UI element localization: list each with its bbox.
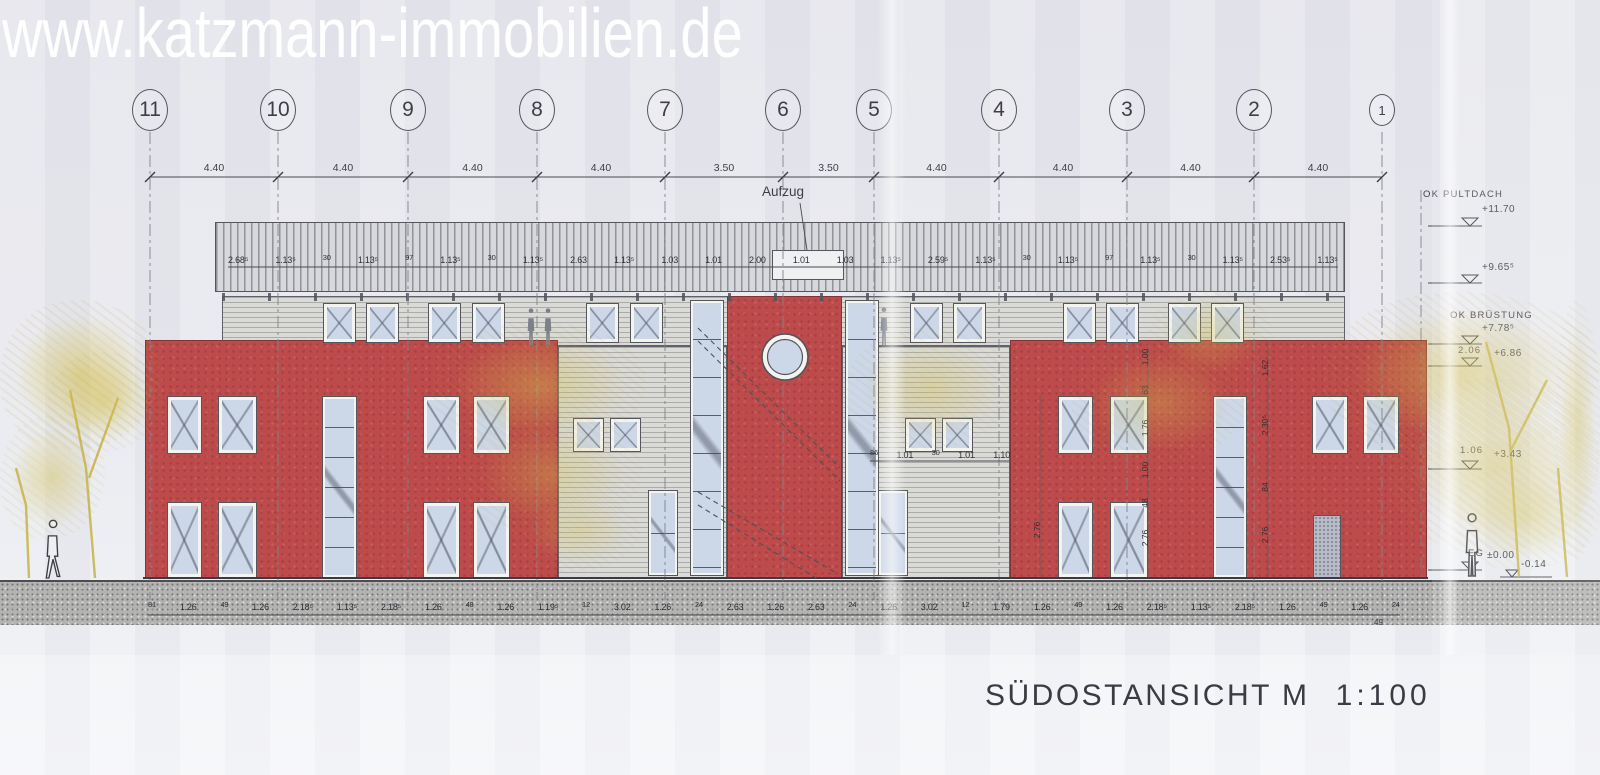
bottom-dimension-chain: 811.26491.262.18⁵1.13⁵2.18⁵1.26481.261.1… xyxy=(148,600,1400,612)
dim-label-tail: 49 xyxy=(1374,619,1383,627)
dim-label: 48 xyxy=(466,600,474,609)
top-dimension: 4.40 xyxy=(455,163,491,174)
dim-label: 1.13⁵ xyxy=(1058,255,1078,265)
vertical-dim-label: 84 xyxy=(1260,482,1270,491)
dim-label: 30 xyxy=(323,253,331,262)
dim-label: 1.13⁵ xyxy=(1191,602,1211,612)
window xyxy=(366,303,399,343)
grid-axis-2: 2 xyxy=(1236,89,1272,131)
dim-label: 1.26 xyxy=(1279,602,1296,612)
dim-label: 1.13⁵ xyxy=(440,255,460,265)
dim-label: 81 xyxy=(148,600,156,609)
dim-label: 1.13⁵ xyxy=(523,255,543,265)
dim-label: 2.18⁵ xyxy=(1235,602,1255,612)
dim-label: 24 xyxy=(1392,600,1400,609)
dim-label: 1.13⁵ xyxy=(1317,255,1337,265)
grid-axis-7: 7 xyxy=(647,89,683,131)
dim-label: 1.26 xyxy=(1034,602,1051,612)
vertical-dim-label: 1.62 xyxy=(1260,360,1270,377)
window xyxy=(323,303,356,343)
dim-label: 2.53⁵ xyxy=(1270,255,1290,265)
grid-axis-9: 9 xyxy=(390,89,426,131)
dim-label: 1.79 xyxy=(993,602,1010,612)
vertical-dim-label: 1.00 xyxy=(1140,462,1150,479)
window xyxy=(428,303,461,343)
dim-label: 1.13⁵ xyxy=(614,255,634,265)
scan-fold-streak xyxy=(878,0,906,655)
top-dimension: 4.40 xyxy=(1045,163,1081,174)
dim-label: 1.26 xyxy=(497,602,514,612)
window xyxy=(423,502,460,578)
dim-label: 49 xyxy=(1319,600,1327,609)
vertical-dim-label: 2.76 xyxy=(1032,522,1042,539)
dim-label: 24 xyxy=(695,600,703,609)
dim-label: 1.26 xyxy=(180,602,197,612)
dim-label: 3.02 xyxy=(614,602,631,612)
window-strip xyxy=(322,396,357,578)
dim-label: 3.02 xyxy=(921,602,938,612)
grid-axis-8: 8 xyxy=(519,89,555,131)
dim-label: 1.01 xyxy=(793,255,810,265)
grid-axis-11: 11 xyxy=(132,89,168,131)
dim-label: 2.18⁵ xyxy=(381,602,401,612)
grid-axis-10: 10 xyxy=(260,89,296,131)
window xyxy=(218,396,257,454)
dim-label: 1.26 xyxy=(1106,602,1123,612)
grid-axis-6: 6 xyxy=(765,89,801,131)
dim-label: 30 xyxy=(1023,253,1031,262)
window-strip xyxy=(690,300,724,576)
window xyxy=(167,396,202,454)
dim-label: 24 xyxy=(848,600,856,609)
top-dimension: 4.40 xyxy=(919,163,955,174)
dim-label: 30 xyxy=(1188,253,1196,262)
dim-label: 97 xyxy=(405,253,413,262)
dim-label: 1.26 xyxy=(252,602,269,612)
top-dimension: 4.40 xyxy=(1300,163,1336,174)
dim-label: 1.13⁵ xyxy=(975,255,995,265)
roof-dimension-chain: 2.68⁵1.13⁵301.13⁵971.13⁵301.13⁵2.631.13⁵… xyxy=(228,253,1338,265)
watermark: www.katzmann-immobilien.de xyxy=(2,0,743,68)
top-dimension: 4.40 xyxy=(1173,163,1209,174)
window-strip xyxy=(648,490,678,576)
window xyxy=(1063,303,1096,343)
scan-light-area xyxy=(0,655,1600,775)
dim-label: 2.63 xyxy=(570,255,587,265)
top-dimension: 4.40 xyxy=(325,163,361,174)
dim-label: 2.00 xyxy=(749,255,766,265)
dim-label: 1.26 xyxy=(425,602,442,612)
dim-label: 2.63 xyxy=(727,602,744,612)
dim-label: 97 xyxy=(1105,253,1113,262)
vertical-dim-label: 2.30⁵ xyxy=(1260,415,1270,435)
dim-label: 1.03 xyxy=(837,255,854,265)
dim-label: 86 xyxy=(870,448,878,457)
vertical-dim-label: 2.76 xyxy=(1140,530,1150,547)
elevator-label: Aufzug xyxy=(762,185,804,199)
dim-label: 2.63 xyxy=(808,602,825,612)
facade-section-red xyxy=(727,296,842,578)
dim-label: 2.18⁵ xyxy=(293,602,313,612)
window xyxy=(218,502,257,578)
window xyxy=(1106,303,1139,343)
dim-label: 1.13⁵ xyxy=(1223,255,1243,265)
grid-axis-4: 4 xyxy=(981,89,1017,131)
dim-label: 1.13⁵ xyxy=(1140,255,1160,265)
dim-label: 1.13⁵ xyxy=(275,255,295,265)
top-dimension: 3.50 xyxy=(706,163,742,174)
dim-label: 1.26 xyxy=(654,602,671,612)
dim-label: 49 xyxy=(1074,600,1082,609)
top-dimension: 4.40 xyxy=(583,163,619,174)
window xyxy=(630,303,663,343)
view-title: SÜDOSTANSICHT xyxy=(985,681,1272,711)
dim-label: 1.13⁵ xyxy=(337,602,357,612)
dim-label: 1.13⁵ xyxy=(358,255,378,265)
dim-label: 12 xyxy=(582,600,590,609)
dim-label: 1.01 xyxy=(958,450,975,460)
grid-axis-1: 1 xyxy=(1369,94,1395,126)
dim-label: 1.26 xyxy=(1351,602,1368,612)
scan-light-area xyxy=(1432,0,1600,655)
dim-label: 1.26 xyxy=(767,602,784,612)
dim-label: 1.03 xyxy=(661,255,678,265)
dim-label: 12 xyxy=(961,600,969,609)
elevation-drawing: www.katzmann-immobilien.de Aufzug SÜDOST… xyxy=(0,0,1600,775)
drawing-scale: M 1:100 xyxy=(1282,681,1431,711)
window xyxy=(167,502,202,578)
top-dimension: 4.40 xyxy=(196,163,232,174)
grid-axis-3: 3 xyxy=(1109,89,1145,131)
dim-label: 1.10 xyxy=(993,450,1010,460)
dim-label: 1.19⁵ xyxy=(538,602,558,612)
vertical-dim-label: 2.76 xyxy=(1260,527,1270,544)
top-dimension: 3.50 xyxy=(811,163,847,174)
dim-label: 30 xyxy=(488,253,496,262)
dim-label: 1.01 xyxy=(705,255,722,265)
window xyxy=(1058,502,1093,578)
entrance-door xyxy=(1313,515,1341,578)
vertical-dim-label: 48 xyxy=(1140,498,1150,507)
dim-label: 49 xyxy=(220,600,228,609)
dim-label: 2.18⁵ xyxy=(1147,602,1167,612)
dim-label: 2.68⁵ xyxy=(228,255,248,265)
dim-label: 2.59⁵ xyxy=(928,255,948,265)
